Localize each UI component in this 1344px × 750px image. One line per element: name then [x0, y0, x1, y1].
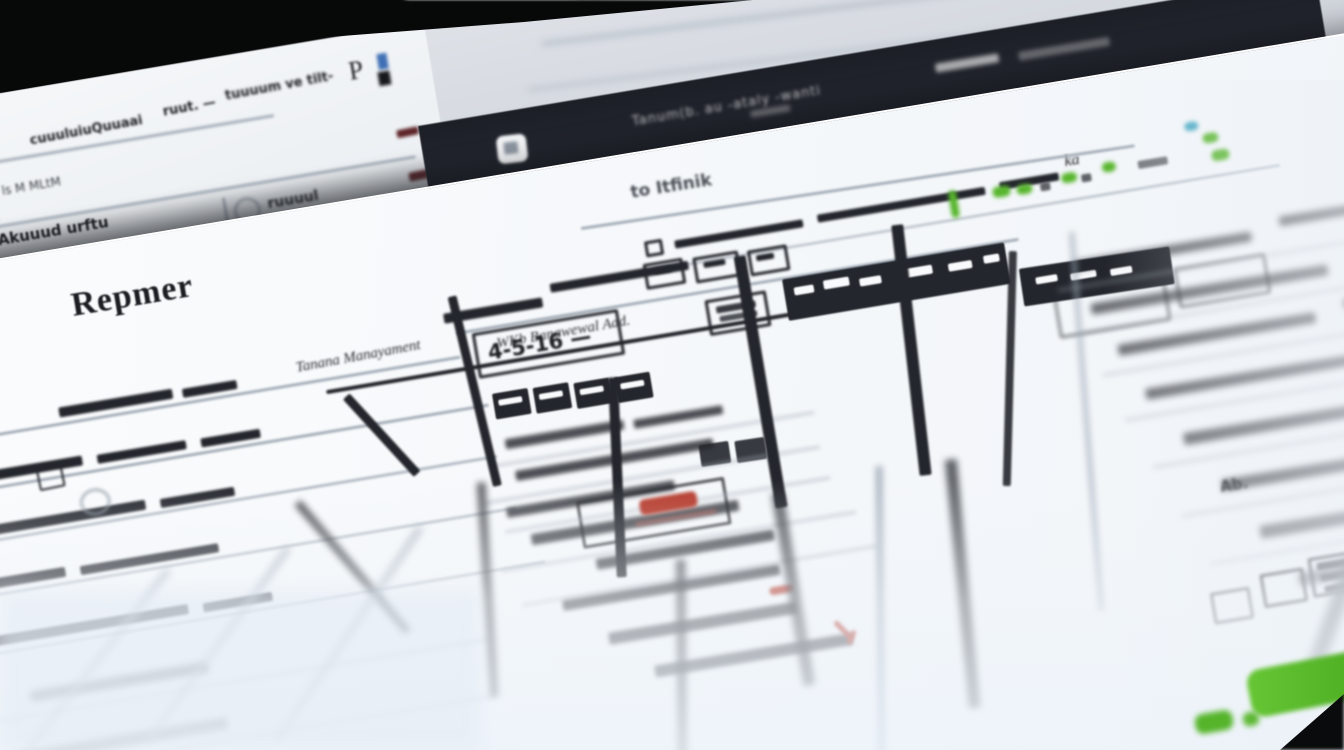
right-defocus-veil: [1104, 80, 1344, 750]
bottomleft-defocus-veil: [0, 590, 480, 750]
photo-of-screen: Cassel/Fassum W h cuuuluiuQuuaai ruut. —…: [0, 0, 1344, 750]
